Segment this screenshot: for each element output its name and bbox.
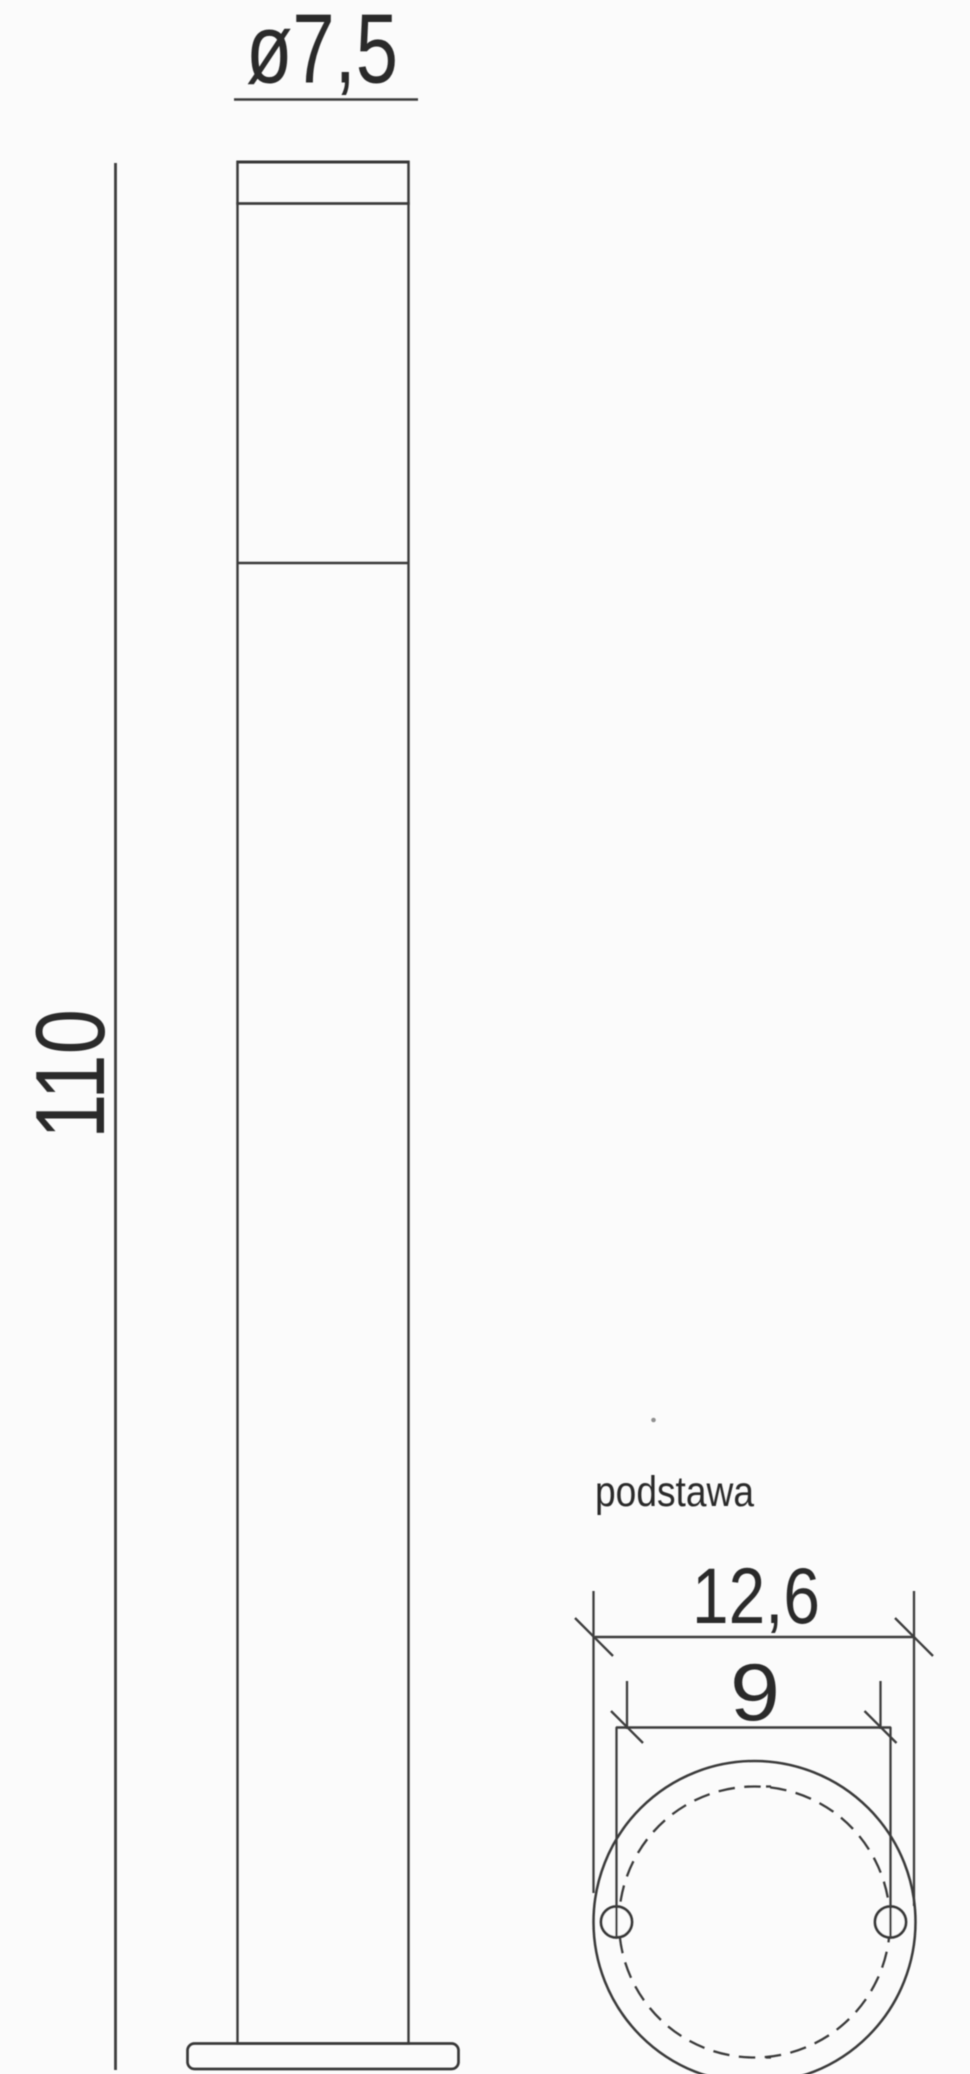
svg-text:ø7,5: ø7,5 (246, 0, 398, 104)
svg-text:podstawa: podstawa (595, 1468, 754, 1516)
svg-text:12,6: 12,6 (692, 1551, 820, 1640)
svg-text:110: 110 (15, 1009, 125, 1139)
svg-text:9: 9 (730, 1648, 780, 1738)
